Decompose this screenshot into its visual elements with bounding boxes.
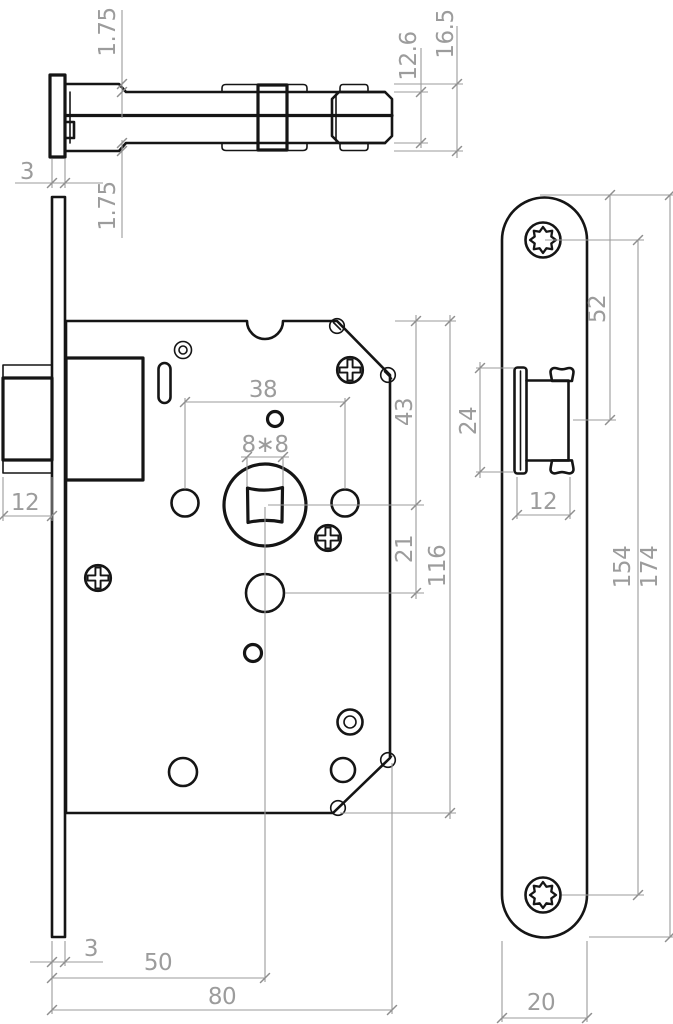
dim-front-spindle-to-cylinder: 21 bbox=[392, 535, 418, 563]
dim-side-outer-height: 16.5 bbox=[433, 9, 459, 58]
dim-plate-width: 20 bbox=[527, 990, 555, 1016]
dim-front-latch-protrusion: 12 bbox=[11, 490, 39, 516]
dim-front-case-depth: 80 bbox=[208, 984, 236, 1010]
dim-plate-screw-spacing: 154 bbox=[610, 546, 636, 588]
front-phillips-screw-left bbox=[85, 565, 111, 591]
dim-plate-top-to-latch: 52 bbox=[585, 295, 611, 323]
dim-side-top-plate: 1.75 bbox=[95, 7, 121, 56]
dim-side-inner-height: 12.6 bbox=[396, 31, 422, 80]
dim-front-hole-spacing: 38 bbox=[249, 377, 277, 403]
dim-front-case-height: 116 bbox=[425, 545, 451, 587]
dim-side-plate-thickness: 3 bbox=[20, 159, 34, 185]
dim-plate-latch-height: 24 bbox=[456, 407, 482, 435]
front-phillips-screw-top bbox=[337, 357, 363, 383]
dim-side-bottom-plate: 1.75 bbox=[95, 181, 121, 230]
dim-plate-length: 174 bbox=[637, 546, 663, 588]
dim-plate-latch-width: 12 bbox=[529, 489, 557, 515]
dim-front-plate-thickness: 3 bbox=[84, 936, 98, 962]
dim-front-top-to-spindle: 43 bbox=[392, 398, 418, 426]
dim-front-backset: 50 bbox=[144, 950, 172, 976]
technical-drawing-page: 3 1.75 1.75 12.6 16.5 bbox=[0, 0, 673, 1024]
front-phillips-screw-mid bbox=[315, 525, 341, 551]
lock-technical-drawing: 3 1.75 1.75 12.6 16.5 bbox=[0, 0, 673, 1024]
dim-front-spindle-size: 8∗8 bbox=[241, 432, 288, 458]
